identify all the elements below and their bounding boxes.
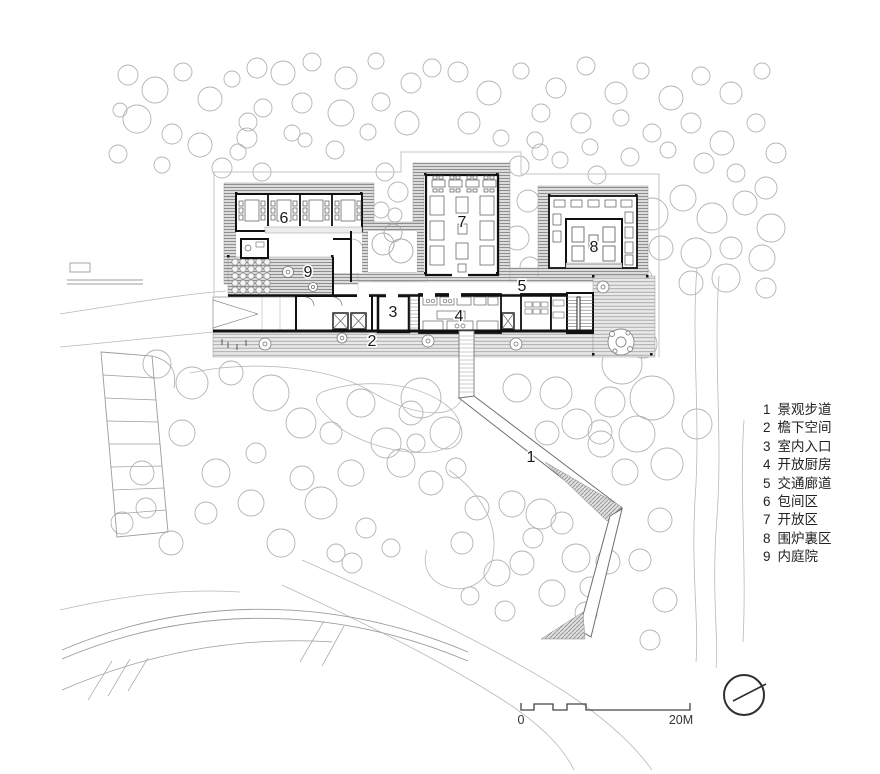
- storage-room: [521, 294, 551, 331]
- room-label-4: 4: [455, 308, 464, 325]
- legend-item-5: 5交通廊道: [763, 475, 832, 491]
- scale-end-label: 20M: [669, 713, 693, 727]
- ramp-area: [213, 297, 296, 330]
- pantry: [551, 294, 567, 331]
- service-bar: [213, 292, 593, 333]
- main-stair: [567, 293, 593, 333]
- walkway-1: [459, 331, 622, 639]
- room-label-9: 9: [304, 264, 313, 281]
- parking-area: [101, 352, 175, 537]
- walkway-slope-hatch-2: [541, 612, 585, 639]
- door-gap: [452, 273, 468, 277]
- floor-plan-canvas: 1 2 3 4 5 6 7 8 9 1景观步道 2檐下空间 3室内入口 4开放厨…: [0, 0, 880, 774]
- road-sign-box: [70, 263, 90, 272]
- scale-start-label: 0: [518, 713, 525, 727]
- room-label-7: 7: [458, 214, 467, 231]
- legend: 1景观步道 2檐下空间 3室内入口 4开放厨房 5交通廊道 6包间区 7开放区 …: [763, 402, 832, 564]
- walkway-slope-hatch: [545, 462, 622, 521]
- legend-item-3: 3室内入口: [763, 438, 832, 454]
- legend-item-9: 9内庭院: [763, 548, 819, 564]
- room-label-1: 1: [527, 449, 536, 466]
- legend-item-4: 4开放厨房: [763, 457, 832, 472]
- room-label-6: 6: [280, 210, 289, 227]
- room-label-8: 8: [590, 239, 599, 256]
- legend-item-6: 6包间区: [763, 494, 818, 509]
- legend-item-1: 1景观步道: [763, 402, 832, 417]
- bench-strip: [265, 227, 362, 233]
- stepping-stones: [232, 259, 270, 293]
- legend-item-8: 8围炉裏区: [763, 531, 832, 546]
- legend-item-7: 7开放区: [763, 512, 818, 527]
- inner-courtyard-9: [228, 257, 333, 296]
- room-label-3: 3: [389, 304, 398, 321]
- legend-item-2: 2檐下空间: [763, 420, 832, 435]
- site-plan-page: 1 2 3 4 5 6 7 8 9 1景观步道 2檐下空间 3室内入口 4开放厨…: [0, 0, 880, 774]
- room-label-5: 5: [518, 278, 527, 295]
- north-arrow-icon: [724, 675, 766, 715]
- scale-bar: 0 20M: [518, 703, 694, 727]
- room-label-2: 2: [368, 333, 377, 350]
